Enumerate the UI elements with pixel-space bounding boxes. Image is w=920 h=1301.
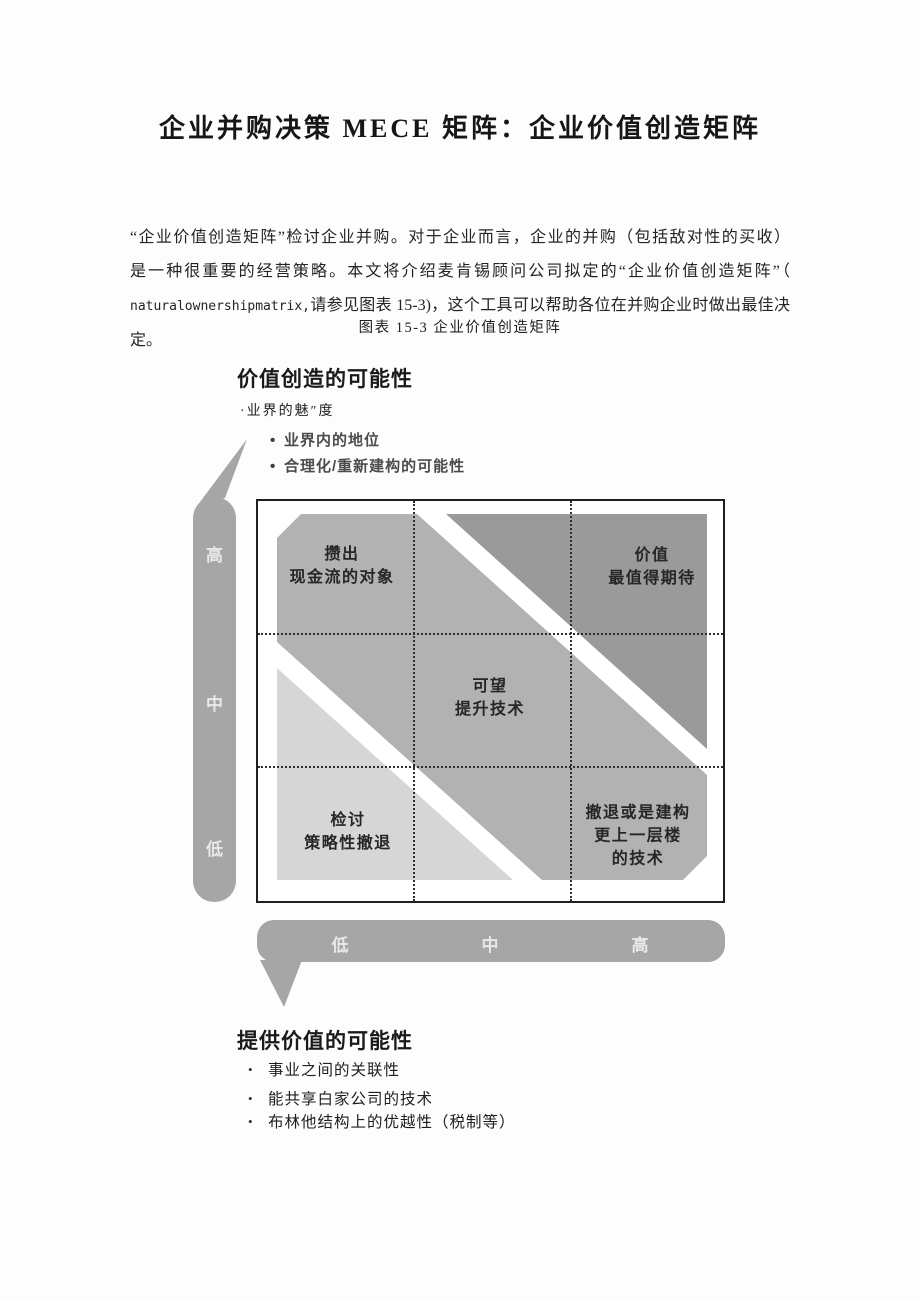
x-axis-bullet: •能共享白家公司的技术 <box>248 1087 433 1109</box>
cell-bottom-left: 检讨策略性撤退 <box>304 809 392 855</box>
cell-line: 提升技术 <box>455 698 525 721</box>
page-title: 企业并购决策 MECE 矩阵：企业价值创造矩阵 <box>0 108 920 145</box>
y-axis-level-high: 高 <box>193 541 236 566</box>
y-axis-bullet: •合理化/重新建构的可能性 <box>270 455 465 476</box>
document-page: 企业并购决策 MECE 矩阵：企业价值创造矩阵 “企业价值创造矩阵”检讨企业并购… <box>0 0 920 1301</box>
x-axis-bullet-label: 布林他结构上的优越性（税制等） <box>268 1114 516 1131</box>
y-axis-bar: 高 中 低 <box>193 497 236 902</box>
cell-line: 更上一层楼 <box>585 825 690 848</box>
x-axis-heading: 提供价值的可能性 <box>237 1025 413 1055</box>
y-axis-sub-bullet-label: 业界的魅″度 <box>247 404 335 419</box>
y-axis-bullet: •业界内的地位 <box>270 429 380 450</box>
x-axis-bullet: •事业之间的关联性 <box>248 1058 400 1080</box>
paragraph-line: “企业价值创造矩阵”检讨企业并购。对于企业而言，企业的并购（包括敌对性的买收） <box>130 221 790 255</box>
bullet-icon: • <box>248 1114 268 1130</box>
cell-top-right: 价值最值得期待 <box>608 544 696 590</box>
cell-line: 的技术 <box>585 848 690 871</box>
cell-line: 撤退或是建构 <box>585 802 690 825</box>
x-axis-pointer-icon <box>255 958 307 1012</box>
y-axis-bullet-label: 合理化/重新建构的可能性 <box>284 458 465 475</box>
x-axis-level-high: 高 <box>632 931 649 956</box>
bullet-icon: • <box>248 1091 268 1107</box>
cell-line: 攒出 <box>289 543 394 566</box>
bullet-icon: • <box>248 1062 268 1078</box>
matrix-grid-line <box>258 633 723 635</box>
cell-line: 策略性撤退 <box>304 832 392 855</box>
cell-line: 现金流的对象 <box>289 566 394 589</box>
x-axis-bullet-label: 能共享白家公司的技术 <box>268 1091 433 1108</box>
x-axis-bullet: •布林他结构上的优越性（税制等） <box>248 1110 516 1132</box>
cell-bottom-right: 撤退或是建构更上一层楼的技术 <box>585 802 690 871</box>
y-axis-bullet-label: 业界内的地位 <box>284 432 380 449</box>
cell-line: 可望 <box>455 675 525 698</box>
paragraph-latin-text: naturalownershipmatrix, <box>130 299 310 314</box>
x-axis-bullet-label: 事业之间的关联性 <box>268 1062 400 1079</box>
y-axis-level-low: 低 <box>193 835 236 860</box>
y-axis-heading: 价值创造的可能性 <box>237 363 413 393</box>
value-creation-matrix: 攒出现金流的对象 价值最值得期待 可望提升技术 检讨策略性撤退 撤退或是建构更上… <box>256 499 725 903</box>
dot-marker-icon: · <box>240 404 247 419</box>
y-axis-sub-bullet: ·业界的魅″度 <box>240 400 335 420</box>
cell-line: 最值得期待 <box>608 567 696 590</box>
y-axis-level-medium: 中 <box>193 690 236 715</box>
paragraph-line: 是一种很重要的经营策略。本文将介绍麦肯锡顾问公司拟定的“企业价值创造矩阵”（ <box>130 255 790 289</box>
bullet-icon: • <box>270 432 284 449</box>
cell-center: 可望提升技术 <box>455 675 525 721</box>
x-axis-level-low: 低 <box>332 931 349 956</box>
cell-top-left: 攒出现金流的对象 <box>289 543 394 589</box>
intro-paragraph: “企业价值创造矩阵”检讨企业并购。对于企业而言，企业的并购（包括敌对性的买收） … <box>130 221 790 358</box>
figure-caption: 图表 15-3 企业价值创造矩阵 <box>0 316 920 337</box>
matrix-grid-line <box>258 766 723 768</box>
cell-line: 价值 <box>608 544 696 567</box>
matrix-grid-line <box>570 501 572 901</box>
x-axis-bar: 低 中 高 <box>257 920 725 962</box>
cell-line: 检讨 <box>304 809 392 832</box>
bullet-icon: • <box>270 458 284 475</box>
x-axis-level-medium: 中 <box>482 931 499 956</box>
matrix-grid-line <box>413 501 415 901</box>
